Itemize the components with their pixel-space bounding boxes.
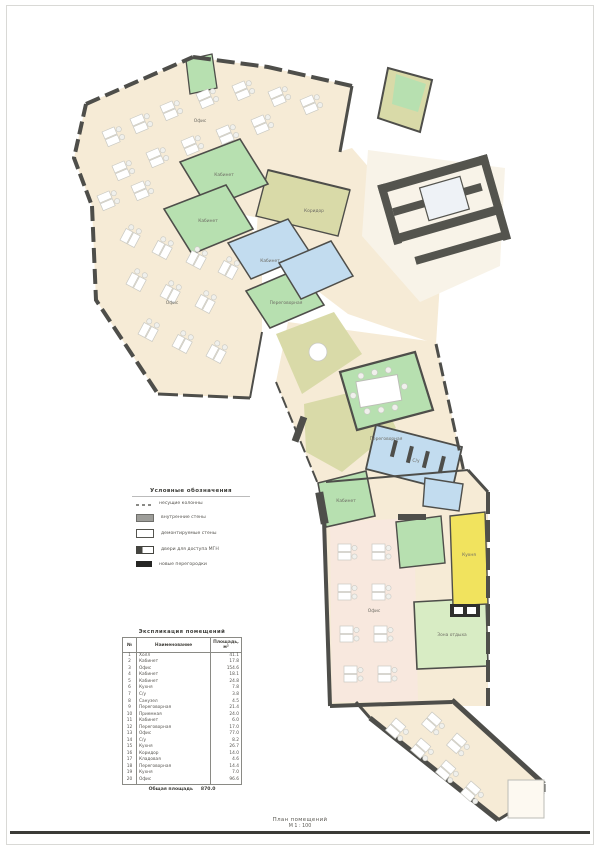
legend-item: внутренние стены	[136, 514, 250, 522]
room-schedule: Экспликация помещений № Наименование Пло…	[122, 629, 242, 792]
col-number: №	[123, 638, 137, 653]
room-label: С/у	[412, 458, 420, 464]
room-label: Кабинет	[336, 497, 356, 504]
floor-plan: ОфисКабинетКабинетОфисКабинетПереговорна…	[0, 0, 600, 850]
room-label: Зона отдыха	[437, 632, 467, 638]
table-row: 20Офис96.6	[123, 777, 242, 784]
legend-box: Условные обозначения несущие колоннывнут…	[129, 486, 253, 577]
room-label: Коридор	[304, 208, 324, 214]
room-label: Офис	[368, 608, 381, 614]
legend-item-label: внутренние стены	[161, 515, 206, 520]
caption-scale: М 1 : 100	[0, 824, 600, 829]
legend-item-label: двери для доступа МГН	[161, 547, 219, 552]
cell-name: Офис	[137, 777, 211, 784]
legend-rows: несущие колоннывнутренние стеныдемонтиру…	[132, 501, 250, 567]
total-label: Общая площадь	[149, 787, 193, 792]
room-label: Кабинет	[214, 171, 234, 178]
room-label: Переговорная	[270, 300, 303, 306]
black-rect-symbol-icon	[136, 561, 152, 567]
gray-rect-symbol-icon	[136, 514, 154, 522]
schedule-title: Экспликация помещений	[122, 629, 242, 635]
legend-item: несущие колонны	[136, 501, 250, 506]
door-symbol-icon	[136, 546, 154, 554]
sheet-caption: План помещений М 1 : 100	[0, 817, 600, 829]
cell-area: 96.6	[211, 777, 242, 784]
legend-item: двери для доступа МГН	[136, 546, 250, 554]
col-name: Наименование	[137, 638, 211, 653]
schedule-total: Общая площадь 870.0	[122, 787, 242, 792]
room-label: Переговорная	[370, 436, 403, 442]
dashes-symbol-icon	[136, 504, 152, 506]
cell-num: 20	[123, 777, 137, 784]
title-block-rule	[10, 831, 590, 834]
legend-item: демонтируемые стены	[136, 529, 250, 538]
schedule-table: № Наименование Площадь, м² 1Холл41.12Каб…	[122, 637, 242, 785]
caption-title: План помещений	[0, 817, 600, 823]
col-area: Площадь, м²	[211, 638, 242, 653]
drawing-sheet: ОфисКабинетКабинетОфисКабинетПереговорна…	[0, 0, 600, 850]
legend-item-label: демонтируемые стены	[161, 531, 216, 536]
room-label: Кабинет	[260, 257, 280, 264]
outline-rect-symbol-icon	[136, 529, 154, 538]
legend-item: новые перегородки	[136, 561, 250, 567]
legend-title: Условные обозначения	[132, 488, 250, 497]
room-label: Офис	[194, 118, 207, 124]
room-label: Кабинет	[198, 217, 218, 224]
total-value: 870.0	[201, 787, 216, 792]
room-label: Кухня	[462, 552, 476, 558]
legend-item-label: несущие колонны	[159, 501, 203, 506]
room-label: Офис	[166, 300, 179, 306]
legend-item-label: новые перегородки	[159, 562, 207, 567]
